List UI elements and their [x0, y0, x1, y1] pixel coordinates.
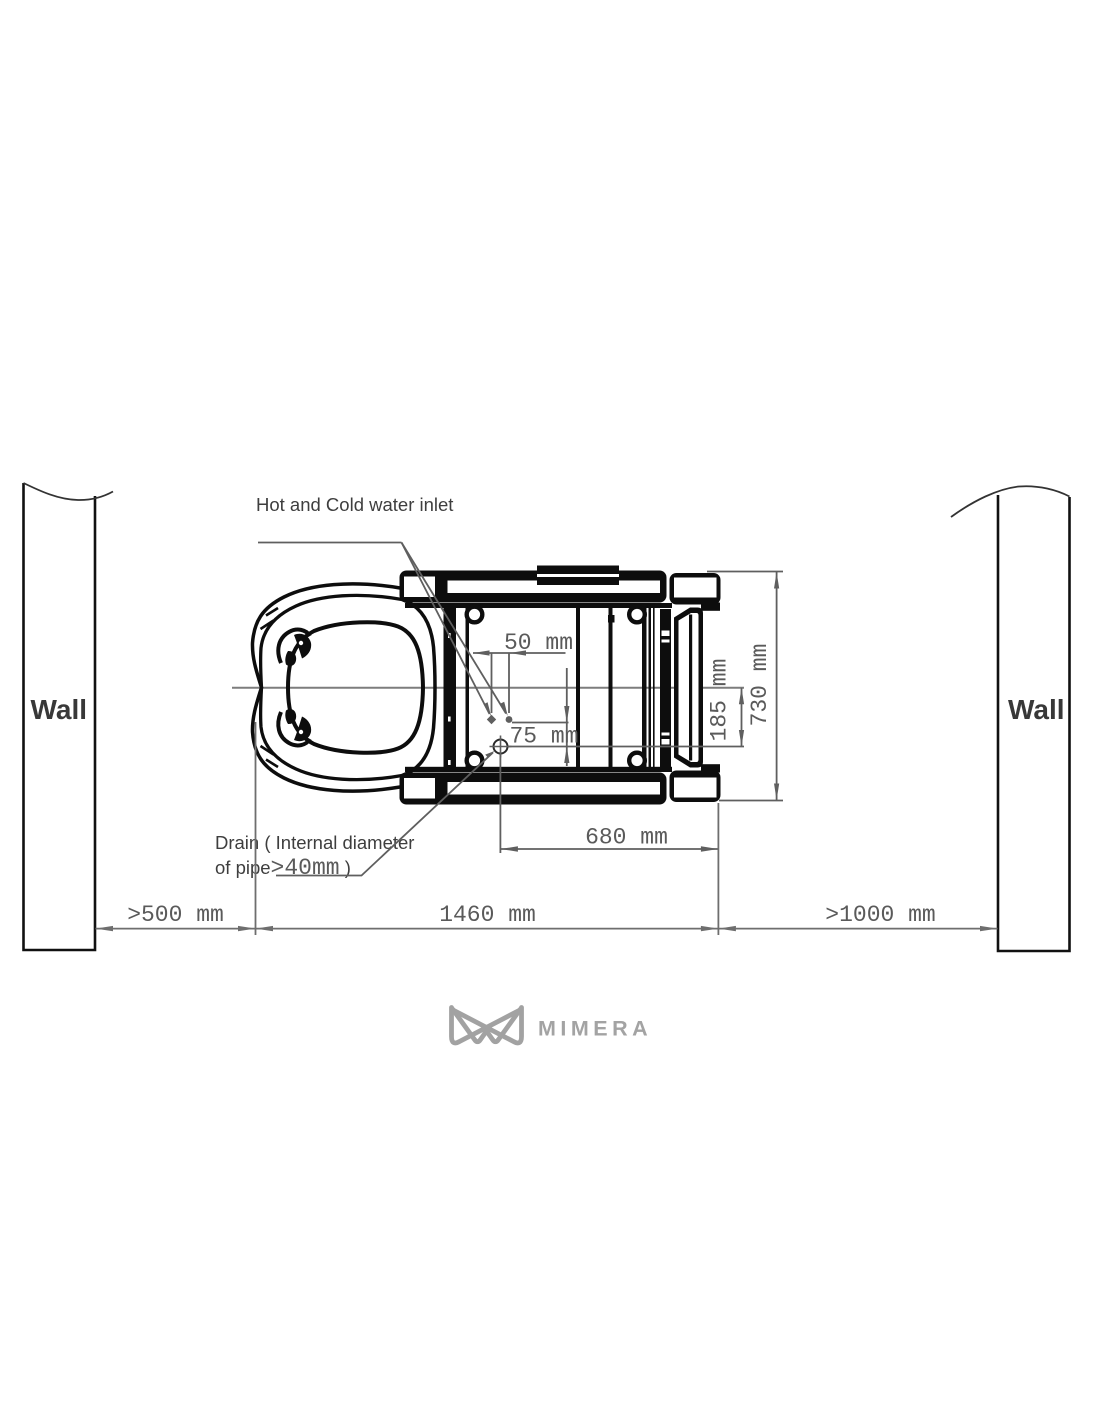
svg-text:Hot and Cold water inlet: Hot and Cold water inlet [256, 494, 453, 515]
svg-text:75 mm: 75 mm [509, 724, 578, 750]
svg-text:730 mm: 730 mm [747, 644, 773, 727]
svg-text:185 mm: 185 mm [707, 659, 733, 742]
svg-text:680 mm: 680 mm [585, 825, 668, 851]
svg-text:1460 mm: 1460 mm [439, 902, 536, 928]
svg-text:50 mm: 50 mm [504, 630, 573, 656]
svg-text:MIMERA: MIMERA [538, 1017, 652, 1041]
svg-text:Wall: Wall [1008, 694, 1065, 725]
svg-text:>1000 mm: >1000 mm [825, 902, 935, 928]
svg-text:>500 mm: >500 mm [127, 902, 224, 928]
svg-text:Wall: Wall [31, 694, 88, 725]
svg-text:of pipe>40mm ): of pipe>40mm ) [215, 855, 351, 881]
svg-text:Drain ( Internal diameter: Drain ( Internal diameter [215, 832, 414, 853]
